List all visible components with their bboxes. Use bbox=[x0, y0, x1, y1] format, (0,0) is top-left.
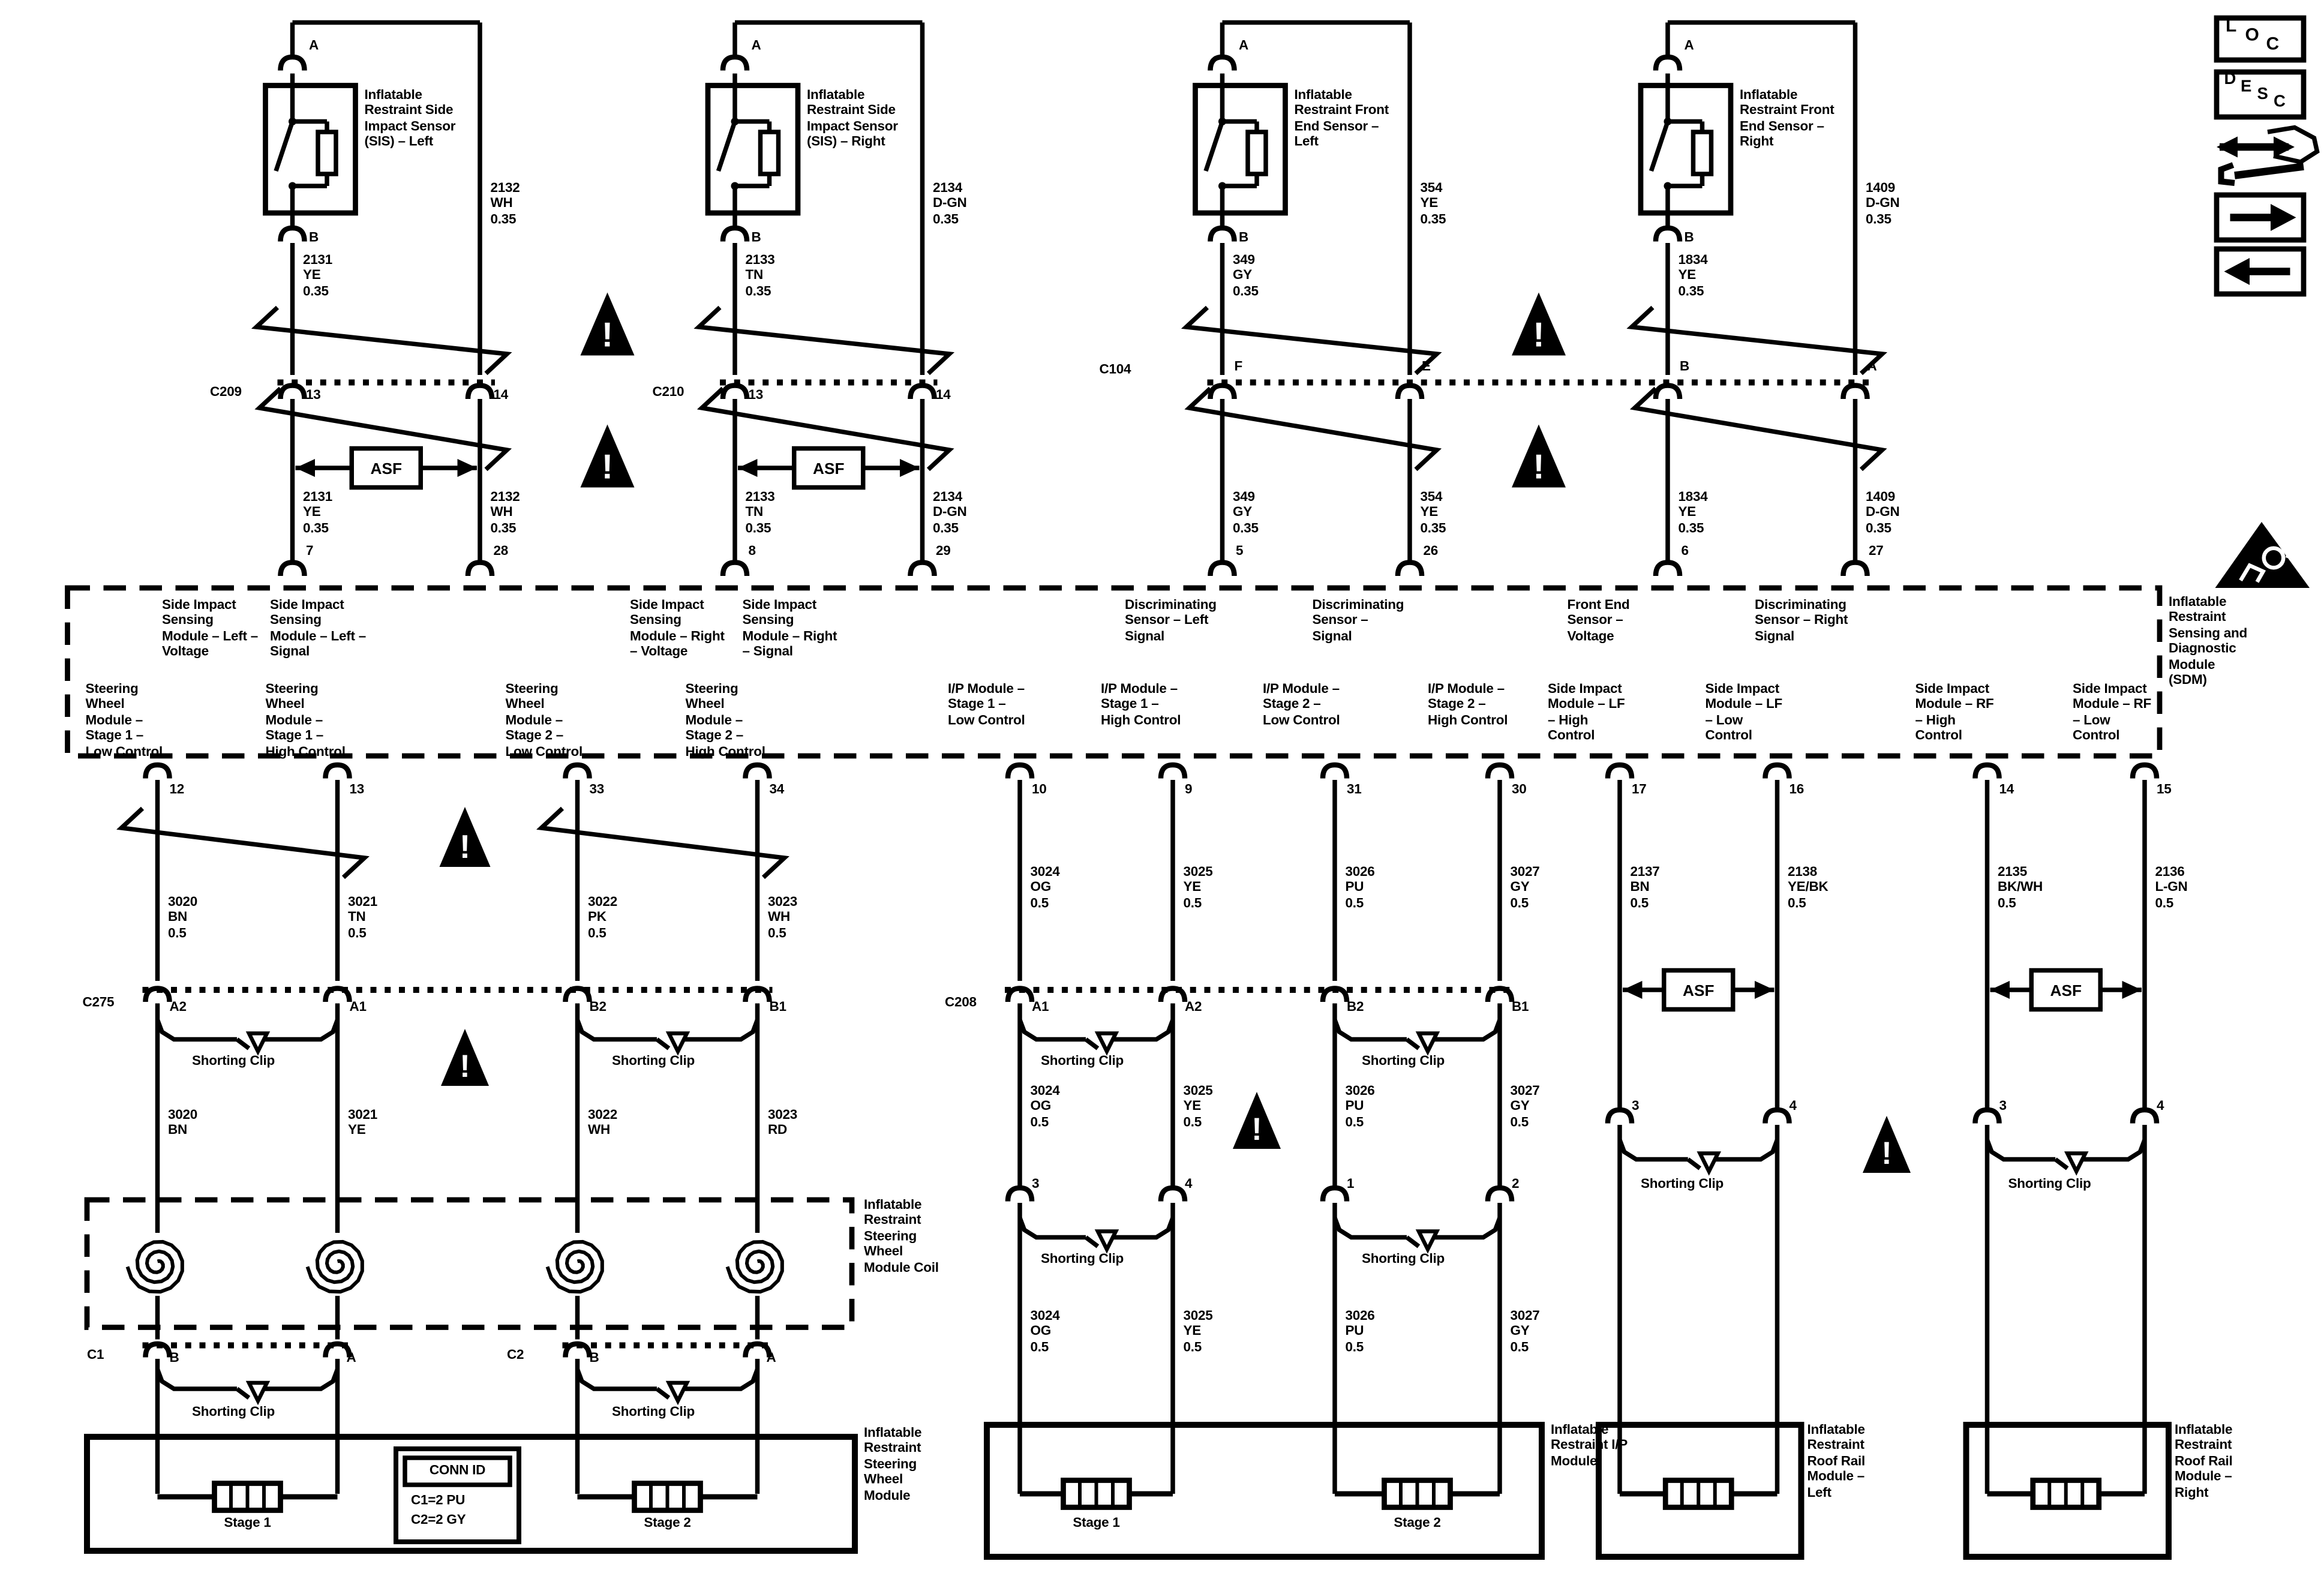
wire-id: 3020 bbox=[168, 894, 243, 909]
sdm-pin-function: Steering Wheel Module – Stage 2 – Low Co… bbox=[506, 681, 593, 759]
wire-size: 0.35 bbox=[1233, 283, 1308, 299]
wire-color: YE bbox=[1184, 1323, 1259, 1339]
wire-label: 1409D-GN0.35 bbox=[1866, 489, 1941, 536]
wire-color: GY bbox=[1511, 1098, 1586, 1114]
conn-id-row: C2=2 GY bbox=[411, 1512, 516, 1527]
wire-label: 3020BN0.5 bbox=[168, 894, 243, 941]
wire-label: 3023WH0.5 bbox=[768, 894, 843, 941]
wire-size: 0.5 bbox=[168, 925, 243, 941]
module-label: Inflatable Restraint Steering Wheel Modu… bbox=[864, 1425, 951, 1503]
sdm-pin-label: 13 bbox=[350, 782, 389, 797]
wire-size: 0.5 bbox=[1184, 895, 1259, 911]
wire-label: 3025YE0.5 bbox=[1184, 1083, 1259, 1130]
pin-label: 4 bbox=[2157, 1098, 2190, 1113]
wire-size: 0.5 bbox=[1346, 1114, 1421, 1130]
wire-id: 2137 bbox=[1631, 864, 1706, 879]
sdm-pin-function: Side Impact Sensing Module – Left – Volt… bbox=[162, 597, 258, 659]
wire-label: 2132WH0.35 bbox=[491, 489, 566, 536]
wire-size: 0.5 bbox=[1511, 1339, 1586, 1355]
connector-label: C1 bbox=[87, 1347, 132, 1362]
sdm-pin-label: 14 bbox=[1999, 782, 2038, 797]
sdm-pin-label: 9 bbox=[1185, 782, 1224, 797]
wire-label: 354YE0.35 bbox=[1421, 489, 1496, 536]
pin-label: E bbox=[1422, 359, 1458, 374]
shorting-clip-label: Shorting Clip bbox=[1041, 1053, 1155, 1068]
sdm-pin-function: Side Impact Sensing Module – Right – Vol… bbox=[630, 597, 726, 659]
sdm-pin-label: 16 bbox=[1789, 782, 1828, 797]
wire-id: 3027 bbox=[1511, 1083, 1586, 1098]
wire-id: 3025 bbox=[1184, 1308, 1259, 1323]
wire-label: 2132WH0.35 bbox=[491, 180, 566, 227]
shorting-clip-label: Shorting Clip bbox=[192, 1404, 306, 1419]
pin-label: B bbox=[1680, 359, 1716, 374]
connector-label: C2 bbox=[507, 1347, 552, 1362]
wire-id: 3025 bbox=[1184, 864, 1259, 879]
wire-label: 3021YE bbox=[348, 1107, 423, 1138]
wire-size: 0.5 bbox=[1346, 895, 1421, 911]
wire-size: 0.5 bbox=[1511, 895, 1586, 911]
shorting-clip-label: Shorting Clip bbox=[1362, 1251, 1476, 1266]
shorting-clip-label: Shorting Clip bbox=[1362, 1053, 1476, 1068]
wire-size: 0.35 bbox=[491, 211, 566, 227]
wire-size: 0.35 bbox=[1679, 520, 1753, 536]
wire-id: 1834 bbox=[1679, 252, 1753, 268]
sdm-pin-label: 5 bbox=[1236, 543, 1275, 559]
pin-label: B1 bbox=[1512, 999, 1554, 1014]
wire-size: 0.5 bbox=[588, 925, 663, 941]
loc-icon-letter: O bbox=[2245, 27, 2259, 43]
sdm-pin-label: 29 bbox=[936, 543, 975, 559]
sdm-module-label: Inflatable Restraint Sensing and Diagnos… bbox=[2169, 594, 2256, 688]
pin-label: 4 bbox=[1185, 1176, 1218, 1191]
wire-id: 3023 bbox=[768, 1107, 843, 1122]
stage-label: Stage 2 bbox=[1373, 1515, 1463, 1530]
connector-label: C210 bbox=[653, 384, 719, 400]
pin-label: 3 bbox=[1632, 1098, 1665, 1113]
wire-color: GY bbox=[1233, 505, 1308, 520]
desc-icon-letter: D bbox=[2224, 72, 2236, 88]
wire-id: 3023 bbox=[768, 894, 843, 909]
wire-color: GY bbox=[1233, 268, 1308, 283]
wire-color: TN bbox=[746, 268, 821, 283]
wire-size: 0.5 bbox=[348, 925, 423, 941]
wire-color: WH bbox=[491, 505, 566, 520]
wire-size: 0.35 bbox=[1866, 211, 1941, 227]
wire-size: 0.5 bbox=[1031, 895, 1106, 911]
pin-label: 14 bbox=[494, 387, 533, 403]
wire-id: 354 bbox=[1421, 489, 1496, 505]
sdm-pin-function: Discriminating Sensor – Right Signal bbox=[1755, 597, 1851, 644]
connector-label: C208 bbox=[945, 995, 1005, 1010]
wire-size: 0.35 bbox=[303, 520, 378, 536]
sensor-name: Inflatable Restraint Side Impact Sensor … bbox=[807, 87, 918, 149]
sdm-pin-function: I/P Module – Stage 1 – Low Control bbox=[948, 681, 1035, 728]
sdm-pin-label: 28 bbox=[494, 543, 533, 559]
wire-size: 0.35 bbox=[1421, 211, 1496, 227]
wire-size: 0.35 bbox=[1421, 520, 1496, 536]
wire-id: 2132 bbox=[491, 489, 566, 505]
pin-label: B bbox=[1239, 230, 1269, 245]
conn-id-title: CONN ID bbox=[405, 1463, 510, 1478]
sensor-name: Inflatable Restraint Side Impact Sensor … bbox=[365, 87, 476, 149]
wire-size: 0.35 bbox=[303, 283, 378, 299]
wire-color: RD bbox=[768, 1122, 843, 1138]
wire-size: 0.5 bbox=[1184, 1339, 1259, 1355]
pin-label: A bbox=[1239, 38, 1269, 53]
wire-label: 1409D-GN0.35 bbox=[1866, 180, 1941, 227]
wire-id: 3024 bbox=[1031, 1083, 1106, 1098]
wire-color: TN bbox=[746, 505, 821, 520]
wire-id: 2135 bbox=[1998, 864, 2073, 879]
pin-label: 3 bbox=[1999, 1098, 2032, 1113]
wire-color: WH bbox=[588, 1122, 663, 1138]
pin-label: 2 bbox=[1512, 1176, 1545, 1191]
wire-label: 3027GY0.5 bbox=[1511, 864, 1586, 911]
wire-id: 3020 bbox=[168, 1107, 243, 1122]
sdm-pin-function: Side Impact Module – RF – High Control bbox=[1915, 681, 2002, 743]
wire-color: L-GN bbox=[2155, 879, 2230, 895]
wire-label: 3024OG0.5 bbox=[1031, 1308, 1106, 1355]
wire-size: 0.35 bbox=[1233, 520, 1308, 536]
wire-color: YE bbox=[1421, 505, 1496, 520]
pin-label: B bbox=[1685, 230, 1715, 245]
sdm-pin-label: 15 bbox=[2157, 782, 2196, 797]
wire-label: 2134D-GN0.35 bbox=[933, 489, 1008, 536]
wire-label: 2134D-GN0.35 bbox=[933, 180, 1008, 227]
wire-id: 2131 bbox=[303, 489, 378, 505]
sdm-pin-function: Steering Wheel Module – Stage 2 – High C… bbox=[686, 681, 773, 759]
shorting-clip-label: Shorting Clip bbox=[612, 1053, 726, 1068]
loc-icon-letter: C bbox=[2266, 36, 2279, 52]
wire-color: BN bbox=[168, 1122, 243, 1138]
module-label: Inflatable Restraint Roof Rail Module – … bbox=[1807, 1422, 1888, 1500]
wire-size: 0.5 bbox=[1031, 1339, 1106, 1355]
wire-id: 2131 bbox=[303, 252, 378, 268]
sensor-name: Inflatable Restraint Front End Sensor – … bbox=[1295, 87, 1406, 149]
sdm-pin-label: 10 bbox=[1032, 782, 1071, 797]
wire-color: PU bbox=[1346, 1323, 1421, 1339]
wire-color: BN bbox=[1631, 879, 1706, 895]
wire-id: 2133 bbox=[746, 489, 821, 505]
wire-size: 0.5 bbox=[1631, 895, 1706, 911]
wire-color: YE bbox=[348, 1122, 423, 1138]
shorting-clip-label: Shorting Clip bbox=[2008, 1176, 2122, 1191]
wire-color: WH bbox=[491, 196, 566, 211]
wire-id: 2136 bbox=[2155, 864, 2230, 879]
sdm-pin-function: I/P Module – Stage 2 – High Control bbox=[1428, 681, 1515, 728]
sdm-pin-function: Steering Wheel Module – Stage 1 – High C… bbox=[266, 681, 353, 759]
wire-size: 0.5 bbox=[2155, 895, 2230, 911]
sdm-pin-label: 12 bbox=[170, 782, 209, 797]
wire-label: 2137BN0.5 bbox=[1631, 864, 1706, 911]
wire-id: 2133 bbox=[746, 252, 821, 268]
pin-label: A2 bbox=[170, 999, 212, 1014]
wiring-diagram-canvas: ASFASF!!!!!!!ASFASF! AB2132WH0.352131YE0… bbox=[0, 0, 2324, 1573]
wire-label: 3027GY0.5 bbox=[1511, 1308, 1586, 1355]
pin-label: A1 bbox=[1032, 999, 1074, 1014]
wire-color: WH bbox=[768, 909, 843, 925]
pin-label: F bbox=[1235, 359, 1271, 374]
wire-size: 0.5 bbox=[1184, 1114, 1259, 1130]
pin-label: B2 bbox=[1347, 999, 1389, 1014]
wire-id: 3021 bbox=[348, 1107, 423, 1122]
wire-label: 3025YE0.5 bbox=[1184, 864, 1259, 911]
wire-color: GY bbox=[1511, 879, 1586, 895]
wire-label: 349GY0.35 bbox=[1233, 252, 1308, 299]
wire-id: 3021 bbox=[348, 894, 423, 909]
wire-color: OG bbox=[1031, 1323, 1106, 1339]
module-label: Inflatable Restraint Roof Rail Module – … bbox=[2175, 1422, 2259, 1500]
wire-size: 0.35 bbox=[1866, 520, 1941, 536]
wire-id: 349 bbox=[1233, 252, 1308, 268]
wire-id: 3026 bbox=[1346, 864, 1421, 879]
wire-label: 3024OG0.5 bbox=[1031, 1083, 1106, 1130]
wire-id: 3026 bbox=[1346, 1308, 1421, 1323]
wire-color: TN bbox=[348, 909, 423, 925]
wire-id: 3024 bbox=[1031, 864, 1106, 879]
wire-label: 3021TN0.5 bbox=[348, 894, 423, 941]
sdm-pin-label: 6 bbox=[1682, 543, 1721, 559]
wire-size: 0.5 bbox=[1788, 895, 1863, 911]
conn-id-row: C1=2 PU bbox=[411, 1493, 516, 1508]
pin-label: B bbox=[752, 230, 782, 245]
wire-id: 3027 bbox=[1511, 864, 1586, 879]
wire-id: 3022 bbox=[588, 1107, 663, 1122]
shorting-clip-label: Shorting Clip bbox=[192, 1053, 306, 1068]
connector-label: C104 bbox=[1100, 362, 1169, 377]
wire-size: 0.35 bbox=[933, 211, 1008, 227]
sdm-pin-label: 33 bbox=[590, 782, 629, 797]
wire-size: 0.35 bbox=[933, 520, 1008, 536]
pin-label: A bbox=[1867, 359, 1903, 374]
pin-label: A1 bbox=[350, 999, 392, 1014]
wire-color: BN bbox=[168, 909, 243, 925]
stage-label: Stage 2 bbox=[623, 1515, 713, 1530]
wire-label: 3025YE0.5 bbox=[1184, 1308, 1259, 1355]
desc-icon-letter: C bbox=[2274, 95, 2286, 110]
wire-label: 3022PK0.5 bbox=[588, 894, 663, 941]
wire-color: OG bbox=[1031, 879, 1106, 895]
wire-color: D-GN bbox=[933, 196, 1008, 211]
wire-label: 3023RD bbox=[768, 1107, 843, 1138]
sdm-pin-label: 34 bbox=[770, 782, 809, 797]
pin-label: B bbox=[170, 1350, 203, 1365]
wire-color: PU bbox=[1346, 1098, 1421, 1114]
wire-label: 2136L-GN0.5 bbox=[2155, 864, 2230, 911]
wire-id: 2134 bbox=[933, 489, 1008, 505]
connector-label: C209 bbox=[210, 384, 276, 400]
wire-label: 354YE0.35 bbox=[1421, 180, 1496, 227]
wire-label: 3026PU0.5 bbox=[1346, 1308, 1421, 1355]
sdm-pin-function: I/P Module – Stage 2 – Low Control bbox=[1263, 681, 1350, 728]
wire-size: 0.35 bbox=[746, 283, 821, 299]
sdm-pin-label: 7 bbox=[306, 543, 345, 559]
pin-label: A bbox=[347, 1350, 380, 1365]
wire-id: 3022 bbox=[588, 894, 663, 909]
wire-size: 0.5 bbox=[1031, 1114, 1106, 1130]
wire-id: 2138 bbox=[1788, 864, 1863, 879]
diagram-labels: AB2132WH0.352131YE0.352131YE0.352132WH0.… bbox=[0, 0, 2324, 1573]
wire-id: 3024 bbox=[1031, 1308, 1106, 1323]
sdm-pin-label: 27 bbox=[1869, 543, 1908, 559]
wire-label: 3022WH bbox=[588, 1107, 663, 1138]
wire-label: 3027GY0.5 bbox=[1511, 1083, 1586, 1130]
pin-label: B2 bbox=[590, 999, 632, 1014]
sdm-pin-function: Side Impact Sensing Module – Right – Sig… bbox=[743, 597, 839, 659]
wire-id: 1409 bbox=[1866, 489, 1941, 505]
pin-label: A bbox=[1685, 38, 1715, 53]
shorting-clip-label: Shorting Clip bbox=[1641, 1176, 1755, 1191]
wire-color: D-GN bbox=[1866, 505, 1941, 520]
desc-icon-letter: S bbox=[2257, 87, 2268, 103]
wire-label: 2133TN0.35 bbox=[746, 252, 821, 299]
wire-id: 2132 bbox=[491, 180, 566, 196]
pin-label: 13 bbox=[306, 387, 345, 403]
wire-color: YE bbox=[1679, 268, 1753, 283]
wire-size: 0.5 bbox=[1511, 1114, 1586, 1130]
coil-label: Inflatable Restraint Steering Wheel Modu… bbox=[864, 1197, 948, 1275]
wire-color: YE/BK bbox=[1788, 879, 1863, 895]
sdm-pin-function: Side Impact Module – LF – High Control bbox=[1548, 681, 1635, 743]
sdm-pin-function: Side Impact Sensing Module – Left – Sign… bbox=[270, 597, 366, 659]
pin-label: 1 bbox=[1347, 1176, 1380, 1191]
wire-id: 349 bbox=[1233, 489, 1308, 505]
sdm-pin-label: 8 bbox=[749, 543, 788, 559]
stage-label: Stage 1 bbox=[203, 1515, 293, 1530]
pin-label: A bbox=[752, 38, 782, 53]
wire-color: YE bbox=[303, 505, 378, 520]
wire-size: 0.35 bbox=[746, 520, 821, 536]
pin-label: 13 bbox=[749, 387, 788, 403]
wire-label: 2133TN0.35 bbox=[746, 489, 821, 536]
wire-id: 2134 bbox=[933, 180, 1008, 196]
wire-label: 3024OG0.5 bbox=[1031, 864, 1106, 911]
pin-label: B bbox=[309, 230, 339, 245]
sdm-pin-function: Discriminating Sensor – Left Signal bbox=[1125, 597, 1221, 644]
connector-label: C275 bbox=[83, 995, 143, 1010]
sdm-pin-function: Steering Wheel Module – Stage 1 – Low Co… bbox=[86, 681, 173, 759]
wire-color: YE bbox=[1679, 505, 1753, 520]
pin-label: A2 bbox=[1185, 999, 1227, 1014]
shorting-clip-label: Shorting Clip bbox=[612, 1404, 726, 1419]
wire-id: 3026 bbox=[1346, 1083, 1421, 1098]
wire-size: 0.5 bbox=[1346, 1339, 1421, 1355]
wire-color: YE bbox=[1184, 879, 1259, 895]
pin-label: B bbox=[590, 1350, 623, 1365]
wire-color: GY bbox=[1511, 1323, 1586, 1339]
wire-color: PK bbox=[588, 909, 663, 925]
wire-color: OG bbox=[1031, 1098, 1106, 1114]
sdm-pin-function: Side Impact Module – RF – Low Control bbox=[2073, 681, 2160, 743]
wire-color: D-GN bbox=[933, 505, 1008, 520]
sdm-pin-function: Discriminating Sensor – Signal bbox=[1313, 597, 1409, 644]
wire-id: 1834 bbox=[1679, 489, 1753, 505]
pin-label: A bbox=[767, 1350, 800, 1365]
wire-color: BK/WH bbox=[1998, 879, 2073, 895]
module-label: Inflatable Restraint I/P Module bbox=[1551, 1422, 1629, 1469]
pin-label: A bbox=[309, 38, 339, 53]
pin-label: 4 bbox=[1789, 1098, 1822, 1113]
sensor-name: Inflatable Restraint Front End Sensor – … bbox=[1740, 87, 1851, 149]
desc-icon-letter: E bbox=[2241, 80, 2251, 95]
sdm-pin-label: 26 bbox=[1424, 543, 1463, 559]
pin-label: 3 bbox=[1032, 1176, 1065, 1191]
wire-color: D-GN bbox=[1866, 196, 1941, 211]
pin-label: B1 bbox=[770, 999, 812, 1014]
wire-id: 3025 bbox=[1184, 1083, 1259, 1098]
sdm-pin-function: I/P Module – Stage 1 – High Control bbox=[1101, 681, 1188, 728]
wire-label: 2131YE0.35 bbox=[303, 489, 378, 536]
stage-label: Stage 1 bbox=[1052, 1515, 1142, 1530]
wire-label: 3026PU0.5 bbox=[1346, 864, 1421, 911]
sdm-pin-label: 31 bbox=[1347, 782, 1386, 797]
wire-size: 0.35 bbox=[491, 520, 566, 536]
wire-label: 3026PU0.5 bbox=[1346, 1083, 1421, 1130]
sdm-pin-label: 17 bbox=[1632, 782, 1671, 797]
wire-color: PU bbox=[1346, 879, 1421, 895]
wire-label: 2131YE0.35 bbox=[303, 252, 378, 299]
wire-color: YE bbox=[1184, 1098, 1259, 1114]
sdm-pin-function: Side Impact Module – LF – Low Control bbox=[1706, 681, 1792, 743]
sdm-pin-function: Front End Sensor – Voltage bbox=[1568, 597, 1664, 644]
wire-size: 0.5 bbox=[1998, 895, 2073, 911]
wire-id: 1409 bbox=[1866, 180, 1941, 196]
wire-size: 0.5 bbox=[768, 925, 843, 941]
loc-icon-letter: L bbox=[2226, 18, 2236, 34]
wire-color: YE bbox=[1421, 196, 1496, 211]
shorting-clip-label: Shorting Clip bbox=[1041, 1251, 1155, 1266]
wire-id: 354 bbox=[1421, 180, 1496, 196]
wire-label: 2135BK/WH0.5 bbox=[1998, 864, 2073, 911]
wire-label: 349GY0.35 bbox=[1233, 489, 1308, 536]
wire-size: 0.35 bbox=[1679, 283, 1753, 299]
wire-id: 3027 bbox=[1511, 1308, 1586, 1323]
wire-color: YE bbox=[303, 268, 378, 283]
wire-label: 1834YE0.35 bbox=[1679, 252, 1753, 299]
wire-label: 3020BN bbox=[168, 1107, 243, 1138]
wire-label: 1834YE0.35 bbox=[1679, 489, 1753, 536]
sdm-pin-label: 30 bbox=[1512, 782, 1551, 797]
pin-label: 14 bbox=[936, 387, 975, 403]
wire-label: 2138YE/BK0.5 bbox=[1788, 864, 1863, 911]
